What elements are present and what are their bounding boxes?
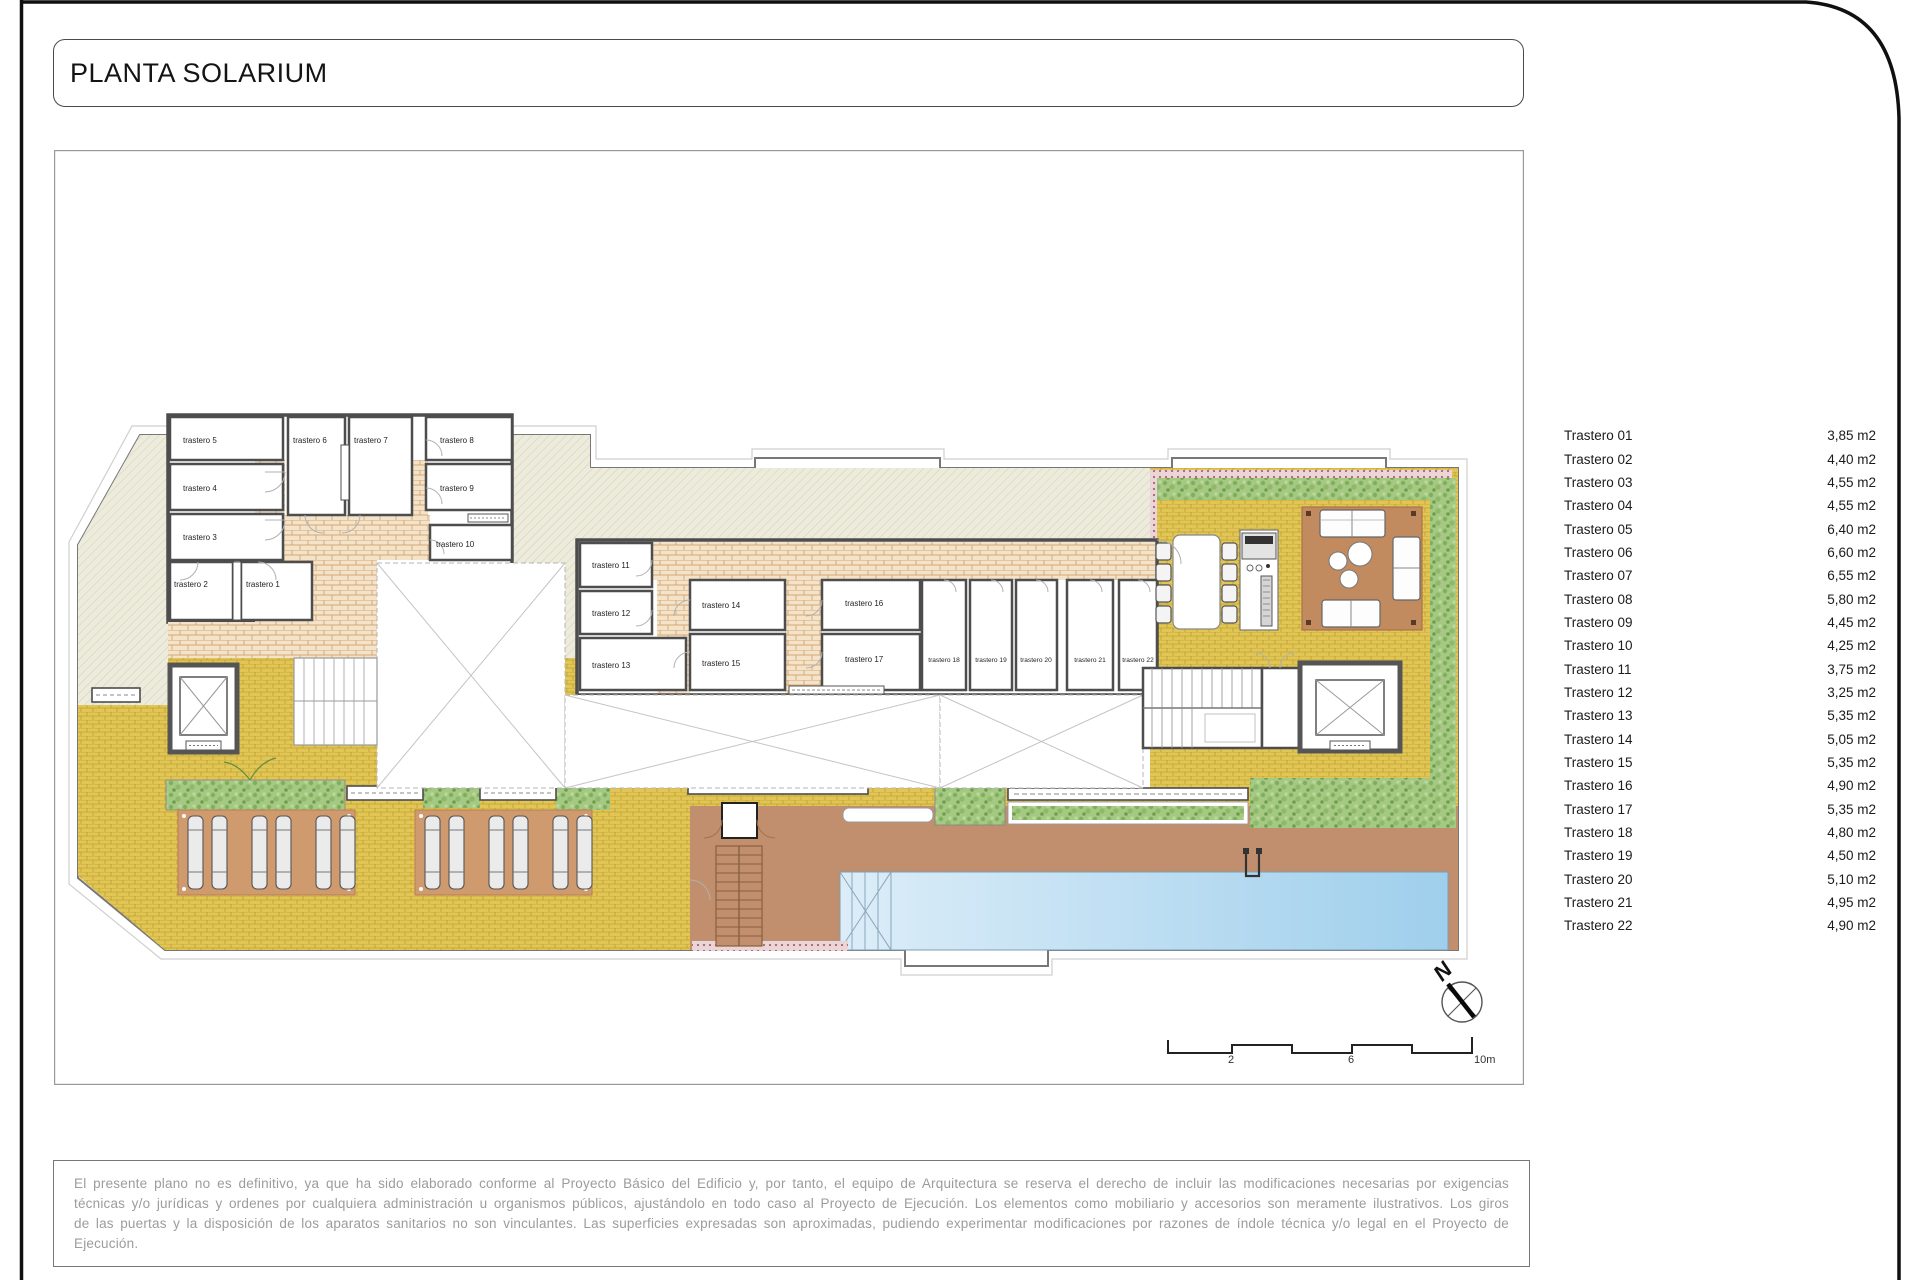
stairs — [1143, 668, 1262, 748]
stairs-down — [716, 846, 762, 946]
legend-room-label: Trastero 05 — [1564, 522, 1633, 537]
terrace-bench — [843, 808, 933, 822]
svg-text:10m: 10m — [1474, 1054, 1495, 1066]
svg-text:6: 6 — [1348, 1054, 1354, 1066]
legend-room-label: Trastero 20 — [1564, 872, 1633, 887]
legend-room-area: 4,80 m2 — [1827, 825, 1876, 840]
roof-hatch-band — [590, 468, 1157, 540]
legend-room-label: Trastero 03 — [1564, 475, 1633, 490]
legend-room-area: 4,90 m2 — [1827, 778, 1876, 793]
svg-text:trastero 21: trastero 21 — [1074, 657, 1106, 664]
legend-room-label: Trastero 13 — [1564, 708, 1633, 723]
legend-room-area: 4,25 m2 — [1827, 638, 1876, 653]
svg-text:trastero 6: trastero 6 — [293, 436, 327, 445]
legend-room-area: 4,45 m2 — [1827, 615, 1876, 630]
legend-list: Trastero 013,85 m2Trastero 024,40 m2Tras… — [1564, 424, 1876, 938]
legend-room-label: Trastero 19 — [1564, 848, 1633, 863]
disclaimer-box: El presente plano no es definitivo, ya q… — [53, 1160, 1530, 1267]
drawing-sheet: PLANTA SOLARIUM — [0, 0, 1920, 1280]
legend-room-label: Trastero 07 — [1564, 568, 1633, 583]
legend-room-label: Trastero 01 — [1564, 428, 1633, 443]
svg-text:trastero 22: trastero 22 — [1122, 657, 1154, 664]
svg-text:trastero 15: trastero 15 — [702, 659, 741, 668]
svg-text:trastero 5: trastero 5 — [183, 436, 217, 445]
svg-text:trastero 11: trastero 11 — [592, 561, 630, 570]
legend-row: Trastero 013,85 m2 — [1564, 424, 1876, 447]
lounge-set — [1302, 507, 1422, 630]
svg-text:trastero 2: trastero 2 — [174, 580, 208, 589]
legend-room-area: 4,55 m2 — [1827, 475, 1876, 490]
legend-row: Trastero 113,75 m2 — [1564, 657, 1876, 680]
parapet-strip-top — [1157, 470, 1452, 478]
legend-row: Trastero 094,45 m2 — [1564, 611, 1876, 634]
legend-row: Trastero 044,55 m2 — [1564, 494, 1876, 517]
legend-room-area: 3,85 m2 — [1827, 428, 1876, 443]
swimming-pool — [840, 872, 1448, 950]
legend-row: Trastero 224,90 m2 — [1564, 914, 1876, 937]
stairs — [294, 658, 377, 745]
svg-text:trastero 16: trastero 16 — [845, 599, 884, 608]
corridor-paving — [785, 542, 822, 693]
legend-row: Trastero 066,60 m2 — [1564, 541, 1876, 564]
svg-text:trastero 14: trastero 14 — [702, 601, 741, 610]
legend-row: Trastero 145,05 m2 — [1564, 727, 1876, 750]
legend-room-area: 4,55 m2 — [1827, 498, 1876, 513]
legend-room-area: 6,60 m2 — [1827, 545, 1876, 560]
legend-room-area: 5,35 m2 — [1827, 802, 1876, 817]
legend-row: Trastero 194,50 m2 — [1564, 844, 1876, 867]
planter-trough-green — [1012, 806, 1244, 820]
legend-row: Trastero 184,80 m2 — [1564, 821, 1876, 844]
shaft — [233, 562, 241, 620]
legend-room-label: Trastero 22 — [1564, 918, 1633, 933]
legend-room-label: Trastero 08 — [1564, 592, 1633, 607]
svg-text:trastero 17: trastero 17 — [845, 655, 884, 664]
legend-room-area: 5,35 m2 — [1827, 708, 1876, 723]
legend-room-area: 5,35 m2 — [1827, 755, 1876, 770]
legend-room-area: 5,10 m2 — [1827, 872, 1876, 887]
legend-room-area: 3,75 m2 — [1827, 662, 1876, 677]
legend-room-area: 4,95 m2 — [1827, 895, 1876, 910]
hedge-bottom — [1250, 778, 1456, 828]
floor-plan: trastero 5 trastero 4 trastero 3 traster… — [54, 150, 1524, 1090]
legend-room-label: Trastero 21 — [1564, 895, 1633, 910]
svg-text:trastero 7: trastero 7 — [354, 436, 388, 445]
shaft — [341, 445, 349, 500]
disclaimer-text: El presente plano no es definitivo, ya q… — [74, 1174, 1509, 1254]
legend-row: Trastero 164,90 m2 — [1564, 774, 1876, 797]
svg-text:trastero 4: trastero 4 — [183, 484, 217, 493]
elevator — [170, 665, 237, 752]
legend-room-area: 6,55 m2 — [1827, 568, 1876, 583]
legend-room-label: Trastero 11 — [1564, 662, 1632, 677]
legend-room-label: Trastero 12 — [1564, 685, 1633, 700]
floor-plan-svg: trastero 5 trastero 4 trastero 3 traster… — [54, 150, 1524, 1085]
svg-text:trastero 9: trastero 9 — [440, 484, 474, 493]
legend-room-label: Trastero 14 — [1564, 732, 1633, 747]
legend-room-area: 3,25 m2 — [1827, 685, 1876, 700]
hedge-right — [1430, 478, 1456, 785]
legend-row: Trastero 076,55 m2 — [1564, 564, 1876, 587]
legend-room-label: Trastero 02 — [1564, 452, 1633, 467]
legend-row: Trastero 034,55 m2 — [1564, 471, 1876, 494]
legend-row: Trastero 104,25 m2 — [1564, 634, 1876, 657]
legend-room-area: 4,90 m2 — [1827, 918, 1876, 933]
legend-room-label: Trastero 09 — [1564, 615, 1633, 630]
legend-row: Trastero 024,40 m2 — [1564, 447, 1876, 470]
svg-text:trastero 1: trastero 1 — [246, 580, 280, 589]
svg-text:trastero 18: trastero 18 — [928, 657, 960, 664]
legend-row: Trastero 123,25 m2 — [1564, 681, 1876, 704]
legend-row: Trastero 175,35 m2 — [1564, 798, 1876, 821]
legend-room-label: Trastero 16 — [1564, 778, 1633, 793]
svg-text:trastero 12: trastero 12 — [592, 609, 631, 618]
title-box: PLANTA SOLARIUM — [53, 39, 1524, 107]
legend-room-label: Trastero 10 — [1564, 638, 1633, 653]
legend-room-label: Trastero 15 — [1564, 755, 1633, 770]
svg-text:trastero 8: trastero 8 — [440, 436, 474, 445]
svg-text:trastero 19: trastero 19 — [975, 657, 1007, 664]
svg-text:trastero 10: trastero 10 — [436, 540, 475, 549]
legend-room-label: Trastero 18 — [1564, 825, 1633, 840]
legend-room-area: 4,40 m2 — [1827, 452, 1876, 467]
corridor-paving — [168, 622, 377, 658]
outdoor-kitchen — [1240, 530, 1278, 630]
svg-text:trastero 3: trastero 3 — [183, 533, 217, 542]
legend-room-area: 6,40 m2 — [1827, 522, 1876, 537]
legend-room-area: 5,05 m2 — [1827, 732, 1876, 747]
planter-box — [166, 780, 345, 810]
svg-text:2: 2 — [1228, 1054, 1234, 1066]
legend-row: Trastero 205,10 m2 — [1564, 868, 1876, 891]
legend-room-area: 5,80 m2 — [1827, 592, 1876, 607]
legend-room-area: 4,50 m2 — [1827, 848, 1876, 863]
page-title: PLANTA SOLARIUM — [54, 58, 328, 89]
hedge-top — [1157, 478, 1452, 500]
lobby — [1262, 668, 1300, 748]
legend-row: Trastero 214,95 m2 — [1564, 891, 1876, 914]
legend-room-label: Trastero 17 — [1564, 802, 1633, 817]
svg-text:trastero 20: trastero 20 — [1020, 657, 1052, 664]
legend-room-label: Trastero 04 — [1564, 498, 1633, 513]
elevator — [1300, 663, 1400, 751]
legend-row: Trastero 085,80 m2 — [1564, 587, 1876, 610]
legend-room-label: Trastero 06 — [1564, 545, 1633, 560]
legend-row: Trastero 056,40 m2 — [1564, 517, 1876, 540]
svg-text:trastero 13: trastero 13 — [592, 661, 631, 670]
legend-row: Trastero 135,35 m2 — [1564, 704, 1876, 727]
parapet-strip-left — [1150, 470, 1157, 542]
legend-row: Trastero 155,35 m2 — [1564, 751, 1876, 774]
